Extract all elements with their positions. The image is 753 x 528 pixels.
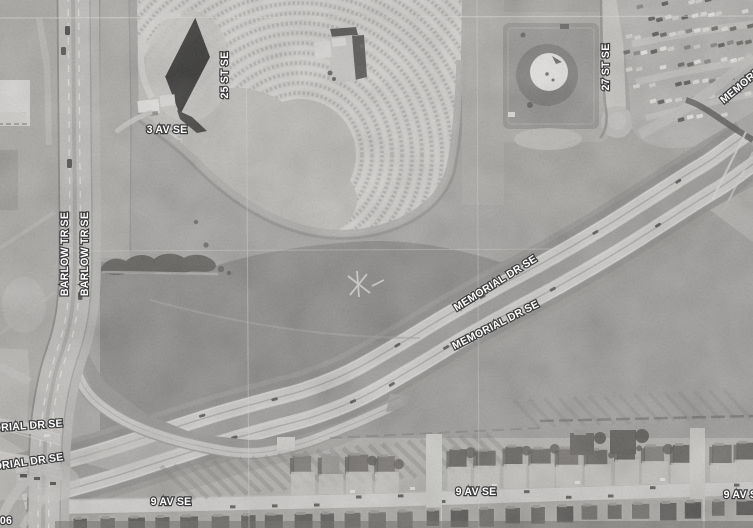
svg-text:25 ST SE: 25 ST SE [219,52,231,99]
svg-text:06: 06 [0,515,12,527]
svg-text:9 AV SE: 9 AV SE [456,486,497,498]
svg-text:27 ST SE: 27 ST SE [600,44,612,91]
svg-text:9 AV SE: 9 AV SE [724,489,753,501]
svg-text:BARLOW TR SE: BARLOW TR SE [59,212,71,296]
svg-text:BARLOW TR SE: BARLOW TR SE [79,212,91,296]
svg-text:3 AV SE: 3 AV SE [147,124,188,136]
svg-text:9 AV SE: 9 AV SE [151,496,192,508]
